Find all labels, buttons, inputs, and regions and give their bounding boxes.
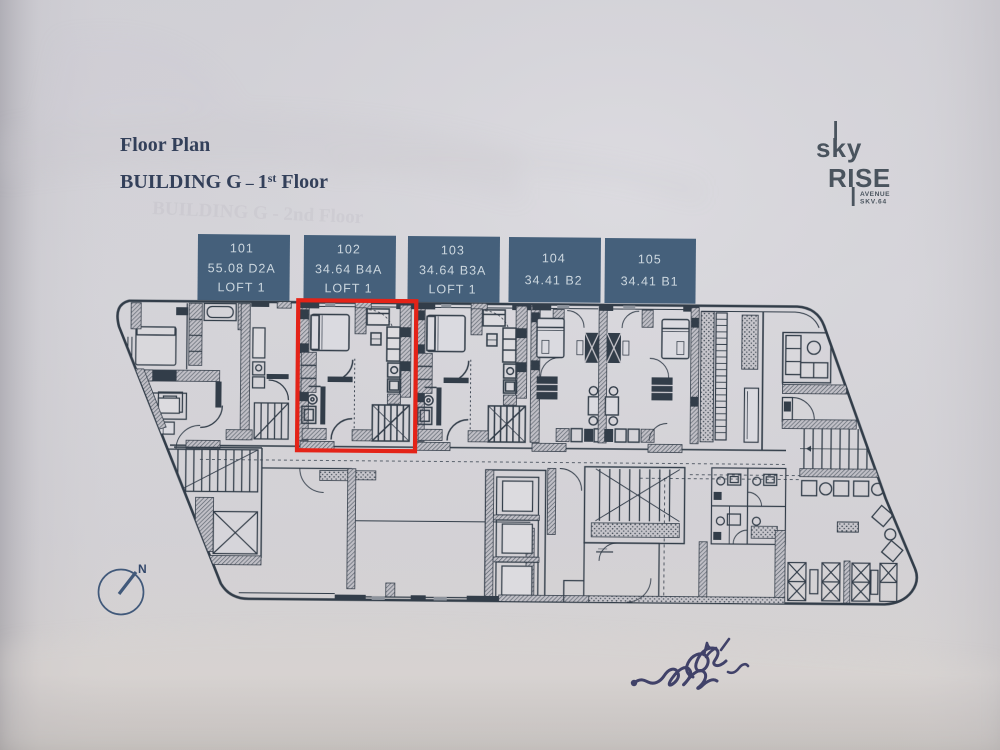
svg-text:RISE: RISE [828, 163, 891, 193]
svg-text:Floor Plan: Floor Plan [120, 134, 210, 156]
svg-text:34.41 B1: 34.41 B1 [621, 274, 679, 289]
svg-text:103: 103 [441, 243, 465, 257]
svg-text:SKV.64: SKV.64 [860, 199, 887, 206]
svg-text:55.08 D2A: 55.08 D2A [208, 261, 276, 276]
svg-text:102: 102 [337, 242, 361, 256]
svg-text:sky: sky [816, 133, 862, 163]
svg-text:LOFT 1: LOFT 1 [428, 282, 476, 296]
svg-text:101: 101 [230, 241, 254, 255]
svg-text:BUILDING G – 1st Floor: BUILDING G – 1st Floor [120, 171, 328, 193]
svg-text:104: 104 [542, 251, 566, 265]
svg-text:LOFT 1: LOFT 1 [324, 281, 372, 295]
svg-text:AVENUE: AVENUE [860, 191, 890, 198]
svg-text:N: N [138, 562, 147, 576]
svg-text:34.41 B2: 34.41 B2 [525, 273, 583, 288]
svg-text:105: 105 [638, 252, 662, 266]
svg-text:34.64 B3A: 34.64 B3A [419, 263, 487, 278]
svg-text:LOFT 1: LOFT 1 [217, 280, 265, 294]
svg-text:34.64 B4A: 34.64 B4A [315, 262, 383, 277]
